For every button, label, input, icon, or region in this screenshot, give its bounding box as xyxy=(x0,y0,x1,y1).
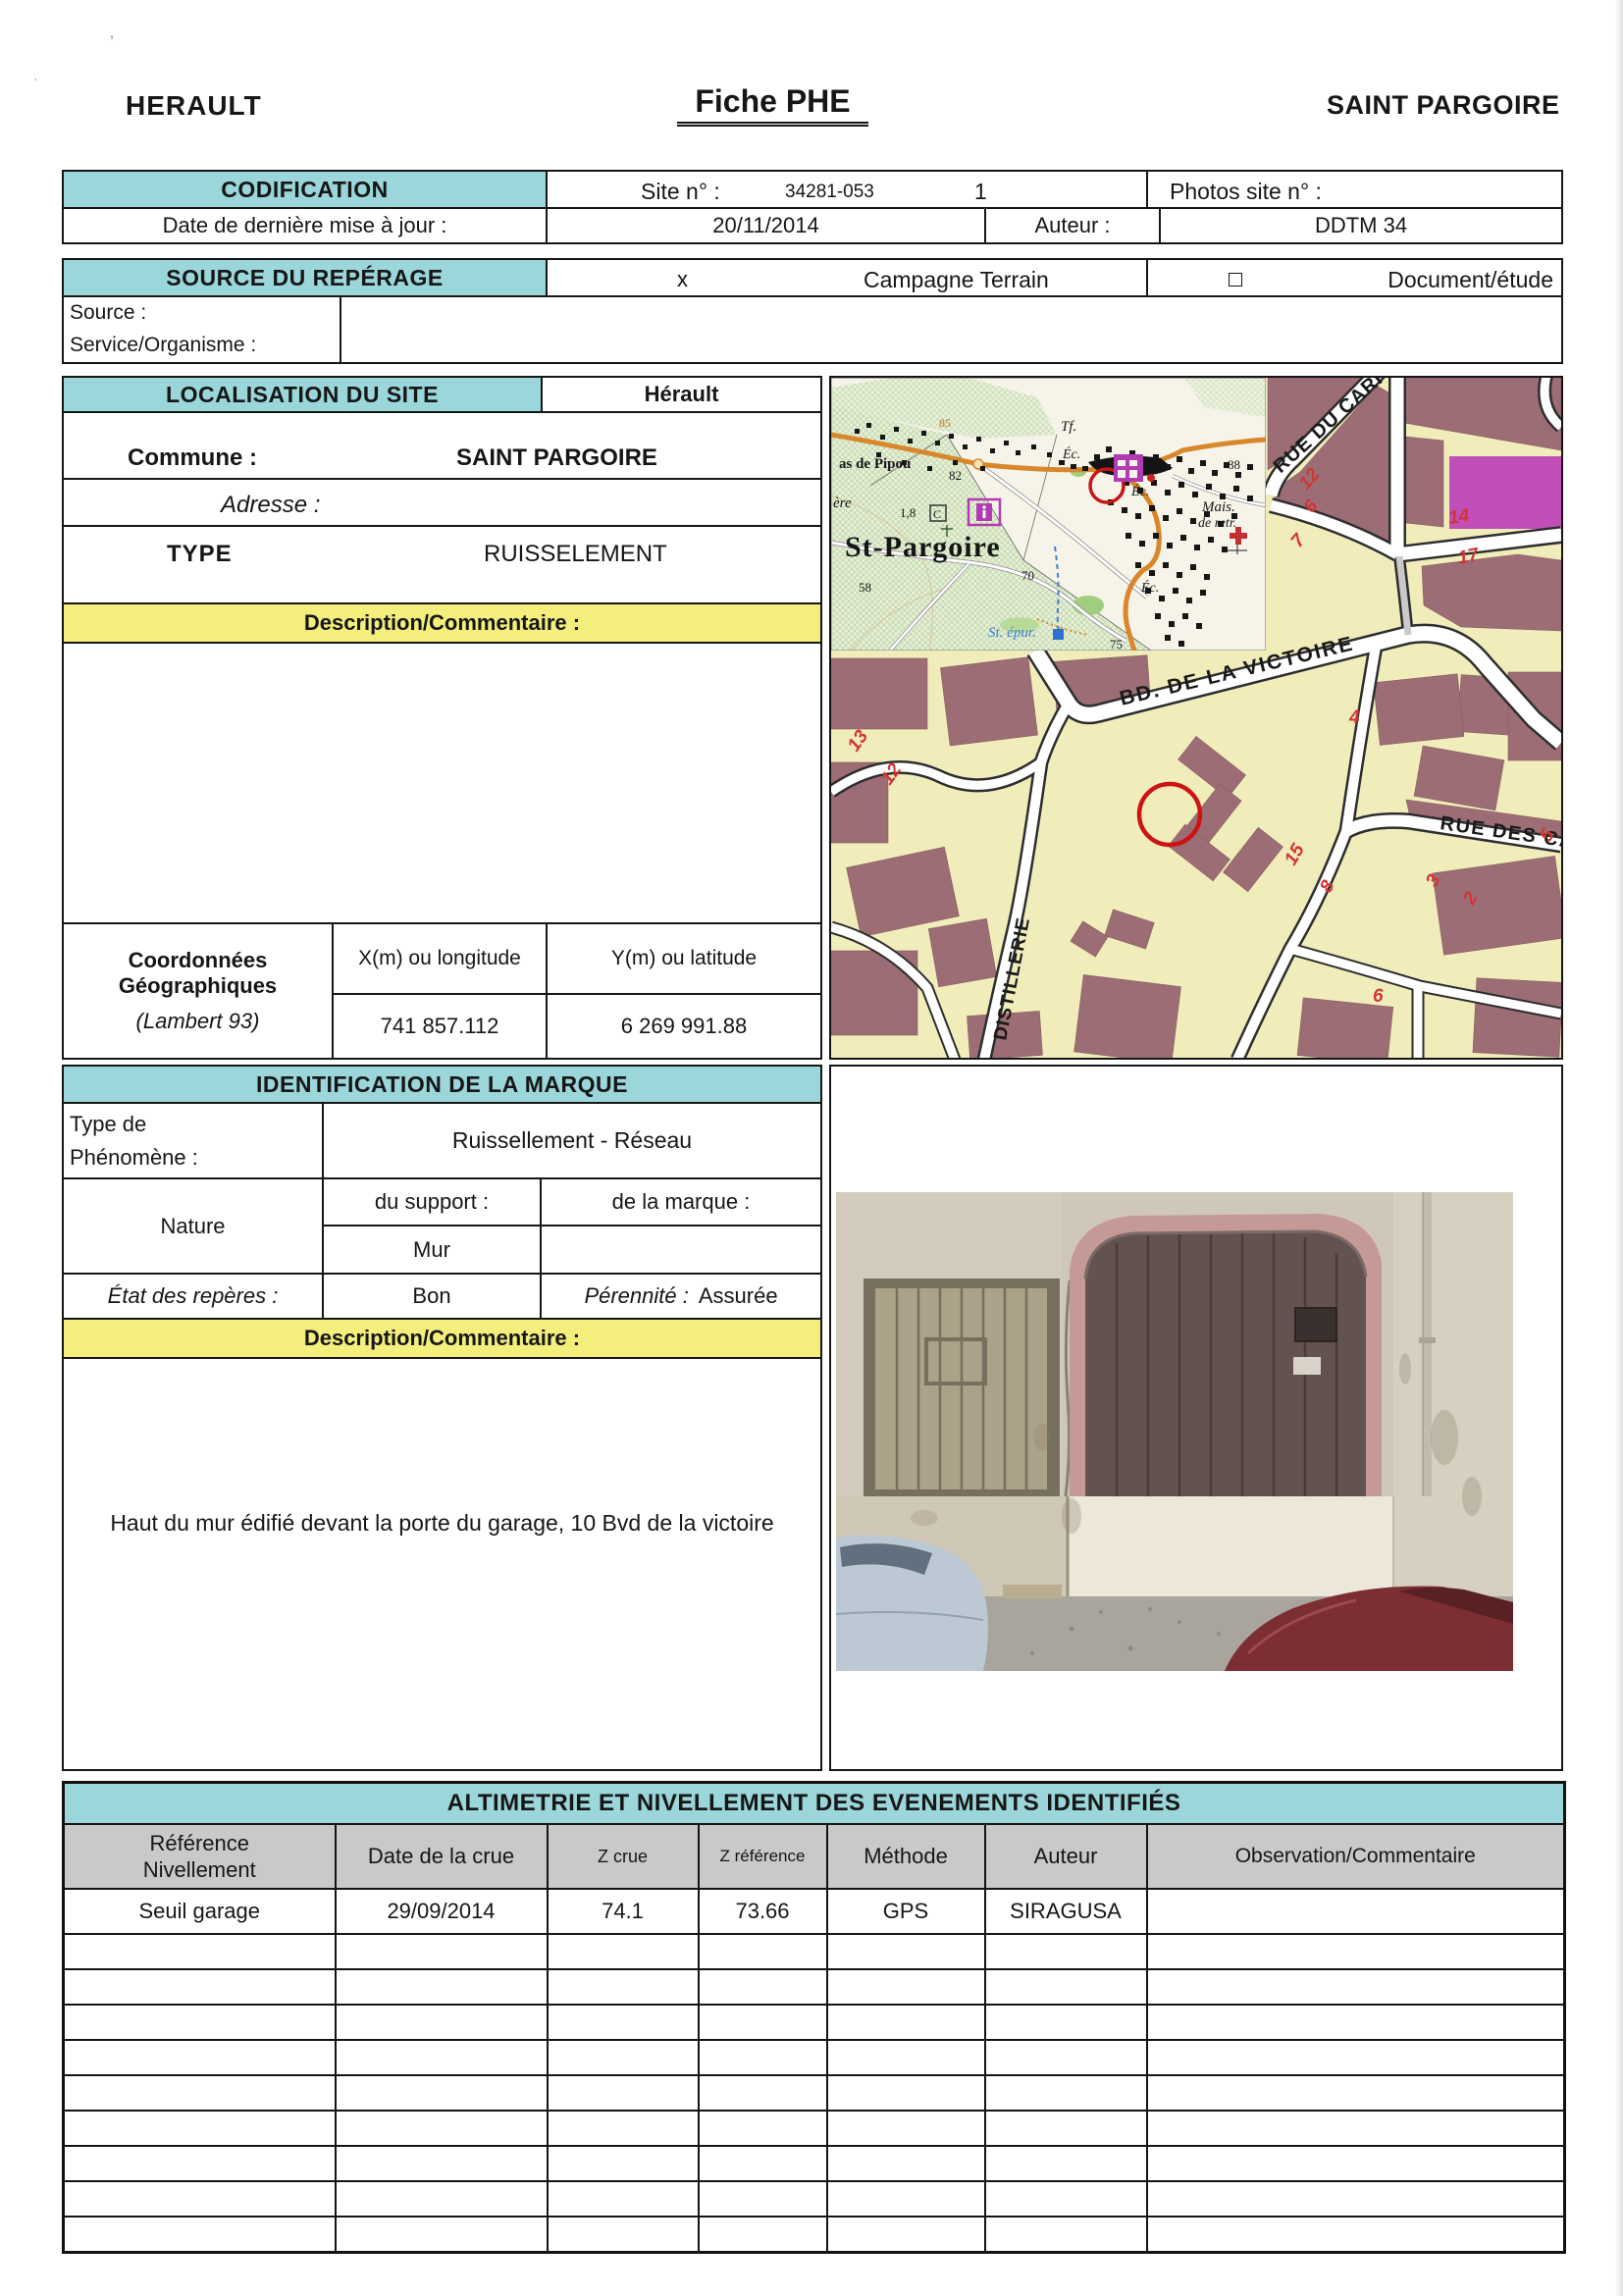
perennite-value: Assurée xyxy=(699,1283,778,1309)
altimetrie-data-row: Seuil garage 29/09/2014 74.1 73.66 GPS S… xyxy=(64,1889,1565,1934)
departement-value: Hérault xyxy=(645,382,719,407)
parcel-number: 6 xyxy=(1373,986,1384,1007)
cell-z-crue: 74.1 xyxy=(548,1889,699,1934)
coords-x-label: X(m) ou longitude xyxy=(358,945,521,971)
coords-title-line2: Géographiques xyxy=(119,973,277,999)
document-etude-cell: Document/étude xyxy=(1146,258,1563,297)
garage-door xyxy=(1085,1231,1366,1496)
coords-subtitle: (Lambert 93) xyxy=(136,1009,260,1034)
altimetrie-empty-row xyxy=(64,2217,1565,2253)
commune-value: SAINT PARGOIRE xyxy=(456,444,657,472)
distance-label: 1,8 xyxy=(900,505,916,520)
altimetrie-empty-row xyxy=(64,2146,1565,2181)
parcel-number: 14 xyxy=(1447,505,1471,529)
perennite-label: Pérennité : xyxy=(584,1283,688,1309)
nature-marque-value-cell xyxy=(540,1225,822,1275)
col-z-crue: Z crue xyxy=(548,1824,699,1889)
source-value-cell xyxy=(340,295,1563,364)
elevation-58: 58 xyxy=(859,580,871,595)
identification-description-text: Haut du mur édifié devant la porte du ga… xyxy=(91,1506,793,1540)
localisation-description-header: Description/Commentaire : xyxy=(62,602,822,644)
scan-artifact: · xyxy=(33,71,38,86)
town-name-label: St-Pargoire xyxy=(845,531,1001,563)
nature-marque-label: de la marque : xyxy=(612,1189,751,1215)
left-doorway xyxy=(864,1278,1060,1499)
page-header-right: SAINT PARGOIRE xyxy=(1327,90,1560,121)
site-map: RUE DU CARRI BD. DE LA VICTOIRE RUE DES … xyxy=(831,378,1561,1058)
altimetrie-empty-row xyxy=(64,2040,1565,2075)
nature-marque-header: de la marque : xyxy=(540,1177,822,1226)
nature-label: Nature xyxy=(160,1214,225,1239)
source-label: Source : xyxy=(70,301,146,325)
map-label-ec: Éc. xyxy=(1062,445,1080,462)
elevation-75: 75 xyxy=(1110,637,1123,652)
map-label-epur: St. épur. xyxy=(988,625,1036,641)
map-label-ere: ère xyxy=(833,496,852,511)
cell-z-reference: 73.66 xyxy=(699,1889,827,1934)
identification-description-header: Description/Commentaire : xyxy=(62,1318,822,1359)
col-observation: Observation/Commentaire xyxy=(1147,1824,1565,1889)
col-methode: Méthode xyxy=(827,1824,985,1889)
photos-site-label: Photos site n° : xyxy=(1170,179,1322,205)
altimetrie-title-row: ALTIMETRIE ET NIVELLEMENT DES EVENEMENTS… xyxy=(64,1783,1565,1825)
localisation-description-box xyxy=(62,642,822,924)
site-number-label: Site n° : xyxy=(641,179,720,205)
date-maj-value-cell: 20/11/2014 xyxy=(546,207,986,244)
kerb-stones xyxy=(1003,1585,1062,1598)
campagne-terrain-mark: x xyxy=(677,267,688,292)
coords-x-header: X(m) ou longitude xyxy=(332,922,548,995)
document-etude-checkbox xyxy=(1229,273,1242,287)
map-label-retr: de retr. xyxy=(1198,516,1236,531)
date-maj-label: Date de dernière mise à jour : xyxy=(163,213,447,238)
scan-artifact: ‚ xyxy=(110,22,114,42)
cell-date-crue: 29/09/2014 xyxy=(336,1889,548,1934)
identification-description-label: Description/Commentaire : xyxy=(304,1326,580,1351)
site-index-value: 1 xyxy=(974,179,987,205)
type-row: TYPE RUISSELEMENT xyxy=(62,525,822,604)
perennite-cell: Pérennité : Assurée xyxy=(540,1273,822,1320)
elevation-88: 88 xyxy=(1228,457,1240,472)
date-maj-label-cell: Date de dernière mise à jour : xyxy=(62,207,548,244)
departement-cell: Hérault xyxy=(541,376,822,413)
nature-support-label: du support : xyxy=(375,1189,489,1215)
etat-label: État des repères : xyxy=(108,1283,279,1309)
codification-title: CODIFICATION xyxy=(62,170,548,209)
service-organisme-label: Service/Organisme : xyxy=(70,334,256,357)
altimetrie-empty-row xyxy=(64,2111,1565,2146)
nature-support-header: du support : xyxy=(322,1177,542,1226)
auteur-value: DDTM 34 xyxy=(1315,213,1407,238)
photos-site-cell: Photos site n° : xyxy=(1146,170,1563,209)
map-label-ec: Éc. xyxy=(1140,579,1159,596)
codification-title-label: CODIFICATION xyxy=(221,177,388,203)
altimetrie-empty-row xyxy=(64,2005,1565,2040)
col-date-crue: Date de la crue xyxy=(336,1824,548,1889)
identification-title-label: IDENTIFICATION DE LA MARQUE xyxy=(256,1071,628,1098)
type-label: TYPE xyxy=(167,541,233,568)
nature-label-cell: Nature xyxy=(62,1177,324,1275)
site-number-value: 34281-053 xyxy=(785,182,874,203)
map-label-tf: Tf. xyxy=(1061,419,1076,435)
monument-icon xyxy=(1114,454,1143,482)
cell-methode: GPS xyxy=(827,1889,985,1934)
identification-title: IDENTIFICATION DE LA MARQUE xyxy=(62,1065,822,1104)
localisation-title: LOCALISATION DU SITE xyxy=(62,376,543,413)
etat-label-cell: État des repères : xyxy=(62,1273,324,1320)
page-header-left: HERAULT xyxy=(126,90,262,122)
altimetrie-empty-row xyxy=(64,1934,1565,1969)
cell-observation xyxy=(1147,1889,1565,1934)
col-z-reference: Z référence xyxy=(699,1824,827,1889)
flood-mark-wall xyxy=(1068,1496,1393,1596)
altimetrie-empty-row xyxy=(64,2181,1565,2217)
adresse-label: Adresse : xyxy=(221,492,320,519)
coords-y-value-cell: 6 269 991.88 xyxy=(546,993,822,1060)
cell-reference: Seuil garage xyxy=(64,1889,336,1934)
elevation-82: 82 xyxy=(949,468,962,483)
scan-edge-shade xyxy=(1615,0,1623,2296)
phenomene-value-cell: Ruissellement - Réseau xyxy=(322,1102,822,1179)
coords-x-value: 741 857.112 xyxy=(381,1014,499,1039)
lieu-dit-label: as de Pipou xyxy=(839,456,911,472)
campagne-terrain-label: Campagne Terrain xyxy=(864,267,1049,293)
altimetrie-header-row: Référence Nivellement Date de la crue Z … xyxy=(64,1824,1565,1889)
etat-value: Bon xyxy=(412,1283,450,1309)
coords-x-value-cell: 741 857.112 xyxy=(332,993,548,1060)
identification-description-box: Haut du mur édifié devant la porte du ga… xyxy=(62,1357,822,1771)
altimetrie-empty-row xyxy=(64,2075,1565,2111)
site-map-box: RUE DU CARRI BD. DE LA VICTOIRE RUE DES … xyxy=(829,376,1563,1060)
phenomene-label-line2: Phénomène : xyxy=(70,1145,198,1171)
nature-support-value: Mur xyxy=(413,1237,450,1263)
phenomene-value: Ruissellement - Réseau xyxy=(452,1127,692,1154)
page-title: Fiche PHE xyxy=(677,83,868,127)
localisation-title-label: LOCALISATION DU SITE xyxy=(166,382,439,408)
adresse-row: Adresse : xyxy=(62,478,822,527)
localisation-description-label: Description/Commentaire : xyxy=(304,610,580,636)
altimetrie-title: ALTIMETRIE ET NIVELLEMENT DES EVENEMENTS… xyxy=(64,1783,1565,1825)
topo-inset: St-Pargoire as de Pipou ère Tf. Éc. Éc. … xyxy=(831,378,1266,652)
date-maj-value: 20/11/2014 xyxy=(712,213,818,238)
commune-row: Commune : SAINT PARGOIRE xyxy=(62,411,822,480)
coords-y-value: 6 269 991.88 xyxy=(621,1014,747,1039)
coords-y-label: Y(m) ou latitude xyxy=(611,947,757,970)
epuration-icon xyxy=(1053,629,1064,640)
source-reperage-title: SOURCE DU REPÉRAGE xyxy=(62,258,548,297)
phenomene-label-line1: Type de xyxy=(70,1112,146,1137)
phenomene-label-cell: Type de Phénomène : xyxy=(62,1102,324,1179)
commune-label: Commune : xyxy=(128,444,257,472)
map-label-mais: Mais. xyxy=(1201,499,1235,515)
altimetrie-empty-row xyxy=(64,1969,1565,2005)
type-value: RUISSELEMENT xyxy=(484,541,667,568)
campagne-terrain-cell: x Campagne Terrain xyxy=(546,258,1148,297)
coords-y-header: Y(m) ou latitude xyxy=(546,922,822,995)
cell-auteur: SIRAGUSA xyxy=(985,1889,1147,1934)
col-auteur: Auteur xyxy=(985,1824,1147,1889)
coords-title-cell: Coordonnées Géographiques (Lambert 93) xyxy=(62,922,334,1060)
map-label-ec: Éc. xyxy=(1130,483,1149,499)
poi-red-dot xyxy=(1147,474,1155,482)
source-labels-cell: Source : Service/Organisme : xyxy=(62,295,341,364)
altimetrie-table: ALTIMETRIE ET NIVELLEMENT DES EVENEMENTS… xyxy=(62,1781,1566,2254)
elevation-85: 85 xyxy=(939,416,951,430)
elevation-70: 70 xyxy=(1021,568,1034,583)
auteur-value-cell: DDTM 34 xyxy=(1159,207,1563,244)
auteur-label: Auteur : xyxy=(1034,213,1110,238)
chapel-letter: C xyxy=(933,507,941,521)
nature-support-value-cell: Mur xyxy=(322,1225,542,1275)
coords-title-line1: Coordonnées xyxy=(129,948,268,973)
parcel-number: 4 xyxy=(1348,707,1360,728)
site-photo xyxy=(836,1192,1513,1671)
col-reference-nivellement: Référence Nivellement xyxy=(64,1824,336,1889)
document-etude-label: Document/étude xyxy=(1387,267,1553,293)
source-reperage-title-label: SOURCE DU REPÉRAGE xyxy=(166,265,443,291)
auteur-label-cell: Auteur : xyxy=(984,207,1161,244)
site-number-cell: Site n° : 34281-053 1 xyxy=(546,170,1148,209)
etat-value-cell: Bon xyxy=(322,1273,542,1320)
